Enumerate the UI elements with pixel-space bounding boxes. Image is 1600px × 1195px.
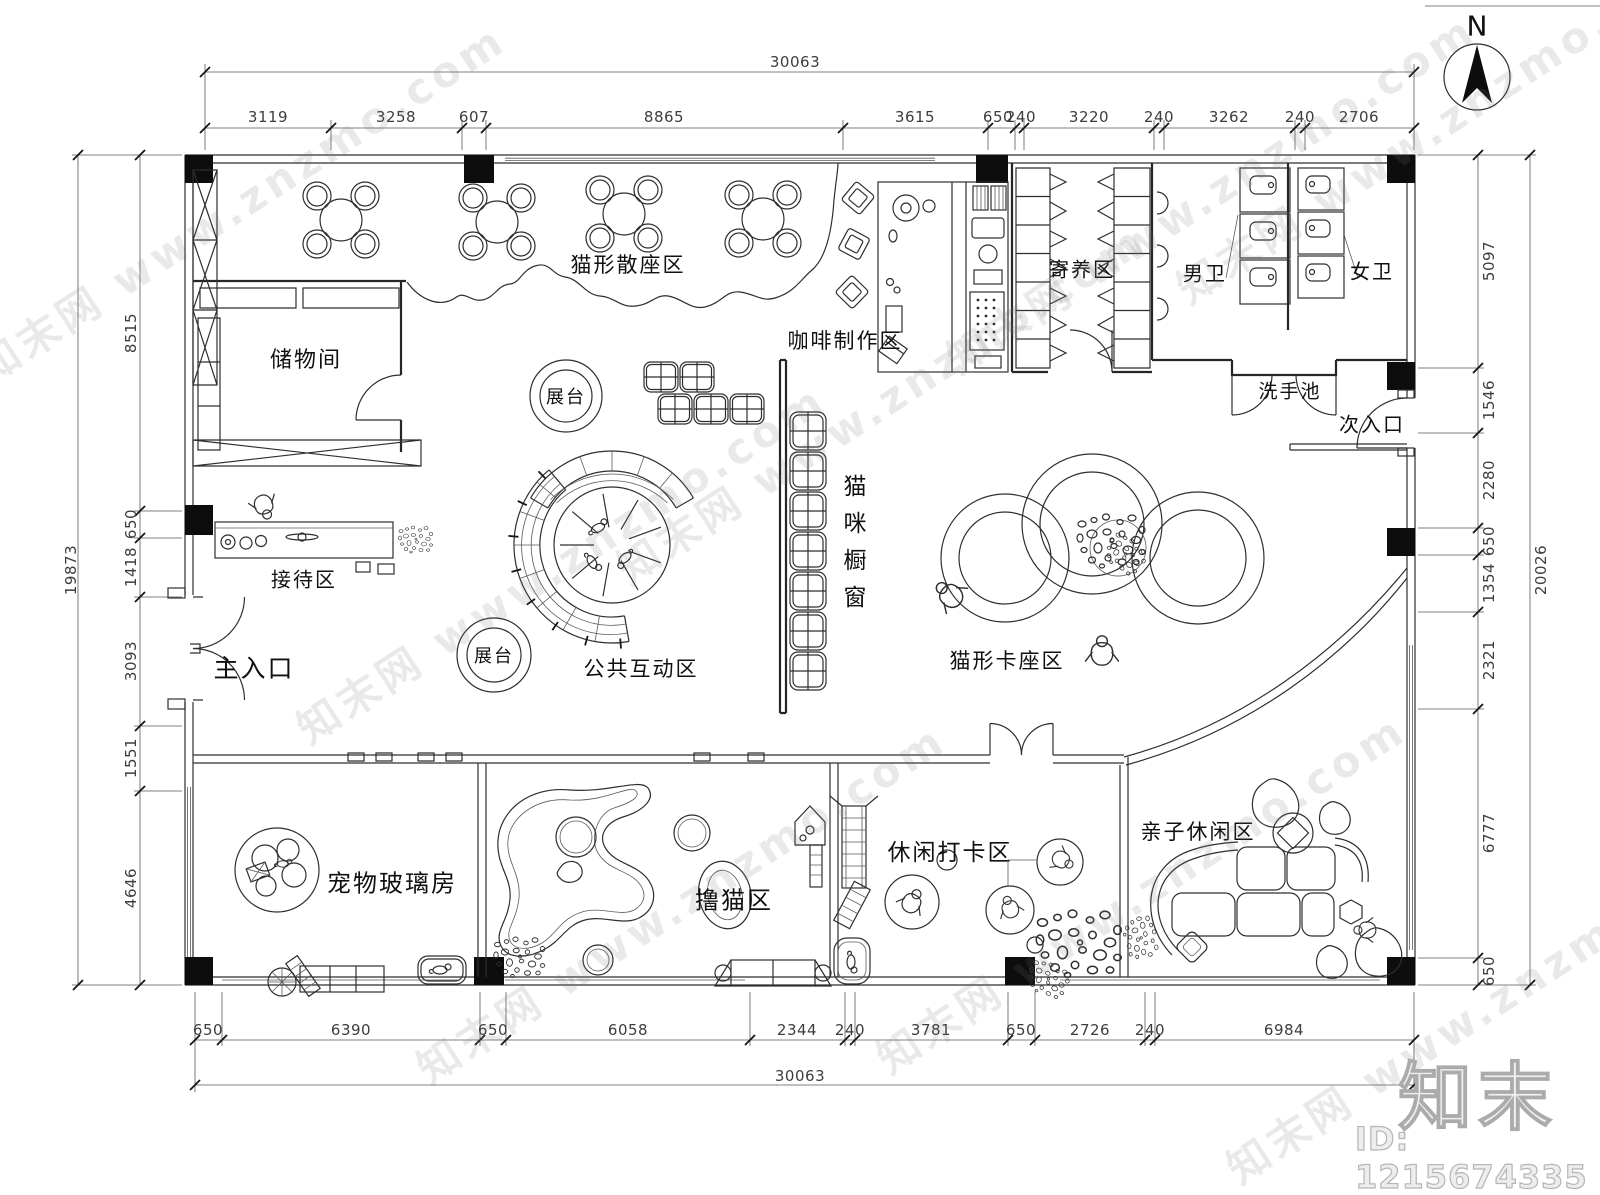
dim-left-total: 19873 bbox=[62, 545, 80, 595]
label-coffee-zone: 咖啡制作区 bbox=[788, 325, 903, 355]
label-display-stand-bottom: 展台 bbox=[474, 642, 514, 668]
dim-bottom-4: 2344 bbox=[777, 1021, 817, 1039]
label-pet-glass-room: 宠物玻璃房 bbox=[327, 864, 457, 899]
dim-top-1: 3258 bbox=[376, 108, 416, 126]
label-checkin-zone: 休闲打卡区 bbox=[888, 833, 1013, 867]
floorplan-page: 储物间 猫形散座区 咖啡制作区 寄养区 男卫 女卫 洗手池 次入口 展台 展台 … bbox=[0, 0, 1600, 1195]
dim-left-4: 1551 bbox=[122, 738, 140, 778]
dim-bottom-total: 30063 bbox=[775, 1067, 825, 1085]
label-boarding-zone: 寄养区 bbox=[1049, 254, 1115, 283]
checkin-furniture bbox=[830, 796, 1121, 1003]
reception-desk bbox=[215, 491, 433, 574]
dim-bottom-10: 6984 bbox=[1264, 1021, 1304, 1039]
dim-right-2: 2280 bbox=[1480, 460, 1498, 500]
dim-top-3: 8865 bbox=[644, 108, 684, 126]
pet-glass-room-furniture bbox=[235, 828, 466, 996]
dim-right-5: 2321 bbox=[1480, 640, 1498, 680]
dim-left-5: 4646 bbox=[122, 868, 140, 908]
label-interaction-zone: 公共互动区 bbox=[584, 653, 699, 683]
label-reception: 接待区 bbox=[271, 564, 337, 593]
dimension-chain-right bbox=[1418, 150, 1536, 990]
dim-right-1: 1546 bbox=[1480, 380, 1498, 420]
label-cat-window: 猫咪橱窗 bbox=[835, 474, 869, 622]
dim-right-6: 6777 bbox=[1480, 813, 1498, 853]
label-cat-booth-zone: 猫形卡座区 bbox=[950, 645, 1065, 675]
floorplan-canvas bbox=[0, 0, 1600, 1195]
label-mens-toilet: 男卫 bbox=[1183, 258, 1227, 287]
dim-bottom-5: 240 bbox=[835, 1021, 865, 1039]
label-cat-seating-zone: 猫形散座区 bbox=[571, 249, 686, 279]
dim-bottom-8: 2726 bbox=[1070, 1021, 1110, 1039]
dim-bottom-0: 650 bbox=[193, 1021, 223, 1039]
dim-bottom-1: 6390 bbox=[331, 1021, 371, 1039]
image-id: ID: 1215674335 bbox=[1355, 1120, 1600, 1195]
curved-wall bbox=[1124, 568, 1407, 765]
label-display-stand-top: 展台 bbox=[546, 383, 586, 409]
dim-top-4: 3615 bbox=[895, 108, 935, 126]
label-main-entrance: 主入口 bbox=[213, 649, 294, 685]
dim-top-2: 607 bbox=[459, 108, 489, 126]
dim-bottom-6: 3781 bbox=[911, 1021, 951, 1039]
family-lounge-furniture bbox=[1121, 779, 1402, 979]
dim-right-4: 1354 bbox=[1480, 563, 1498, 603]
label-cat-petting-zone: 撸猫区 bbox=[695, 881, 773, 916]
dim-right-total: 20026 bbox=[1532, 545, 1550, 595]
label-sink: 洗手池 bbox=[1258, 377, 1321, 404]
label-womens-toilet: 女卫 bbox=[1350, 256, 1394, 285]
dim-bottom-9: 240 bbox=[1135, 1021, 1165, 1039]
dim-bottom-7: 650 bbox=[1006, 1021, 1036, 1039]
label-side-entrance: 次入口 bbox=[1339, 409, 1405, 438]
dim-right-0: 5097 bbox=[1480, 241, 1498, 281]
dim-left-2: 1418 bbox=[122, 547, 140, 587]
dim-top-7: 3220 bbox=[1069, 108, 1109, 126]
dim-right-3: 650 bbox=[1480, 526, 1498, 556]
cat-petting-furniture bbox=[494, 785, 831, 986]
dim-bottom-3: 6058 bbox=[608, 1021, 648, 1039]
cat-booth-cloud bbox=[927, 454, 1264, 665]
toilet-fixtures bbox=[1157, 168, 1344, 320]
dim-top-9: 3262 bbox=[1209, 108, 1249, 126]
dim-top-8: 240 bbox=[1144, 108, 1174, 126]
dim-right-7: 650 bbox=[1480, 956, 1498, 986]
north-label: N bbox=[1467, 10, 1488, 43]
dim-top-6: 240 bbox=[1006, 108, 1036, 126]
label-family-zone: 亲子休闲区 bbox=[1141, 816, 1256, 846]
dim-top-10: 240 bbox=[1285, 108, 1315, 126]
north-arrow-icon bbox=[1425, 6, 1600, 110]
dim-bottom-2: 650 bbox=[478, 1021, 508, 1039]
dim-left-0: 8515 bbox=[122, 313, 140, 353]
dimension-chain-top bbox=[200, 64, 1419, 150]
dim-left-3: 3093 bbox=[122, 641, 140, 681]
label-storage-room: 储物间 bbox=[270, 342, 342, 374]
interaction-ring bbox=[508, 451, 693, 649]
cat-window-cages bbox=[644, 362, 826, 690]
dim-left-1: 650 bbox=[122, 509, 140, 539]
dim-top-0: 3119 bbox=[248, 108, 288, 126]
cat-seating-zone bbox=[303, 163, 838, 307]
dim-top-total: 30063 bbox=[770, 53, 820, 71]
dim-top-11: 2706 bbox=[1339, 108, 1379, 126]
